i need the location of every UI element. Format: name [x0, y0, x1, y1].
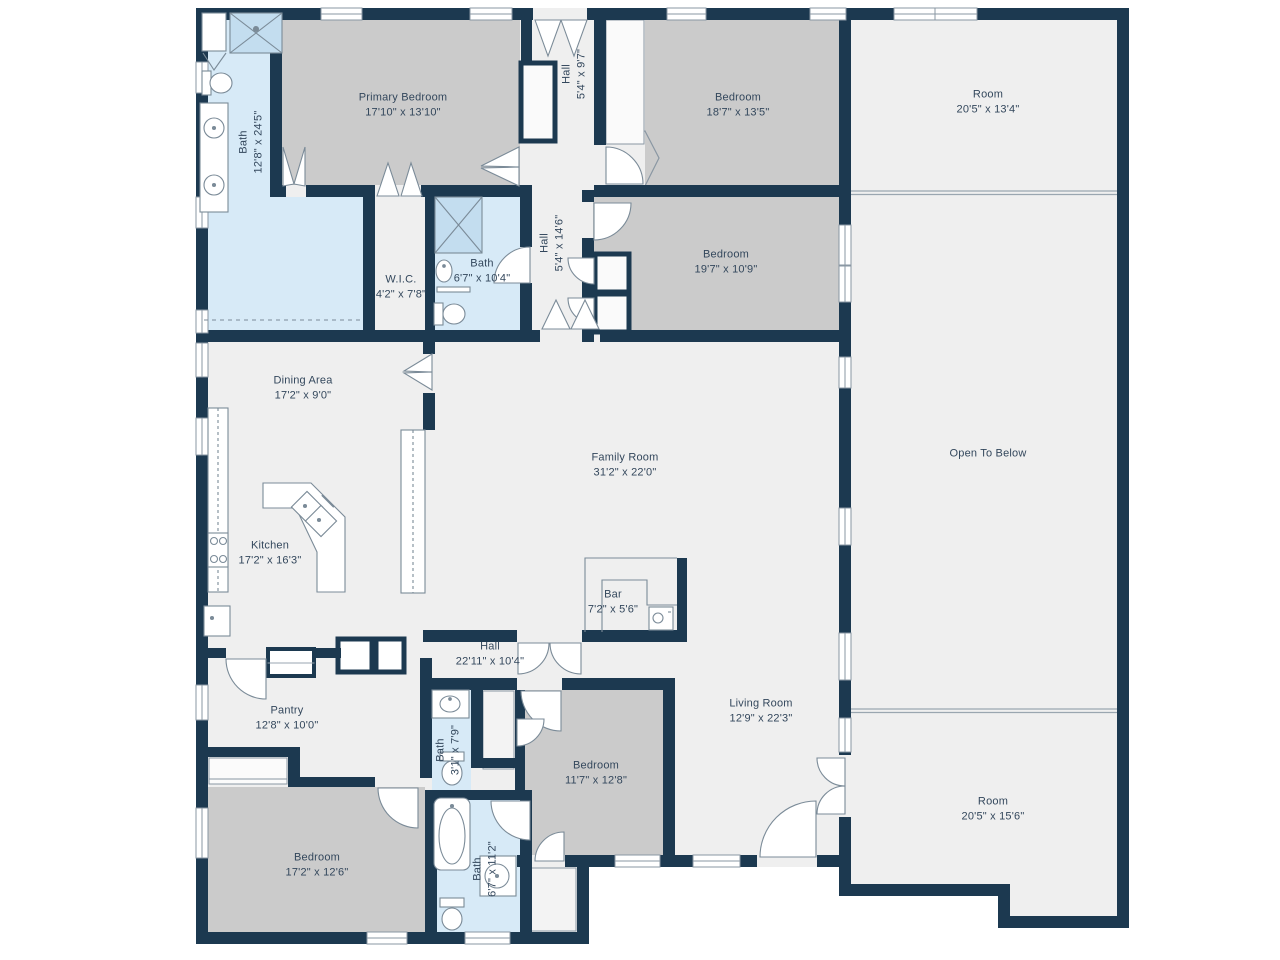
bathtub-icon — [434, 798, 470, 870]
room-label-open-below: Open To Below — [949, 446, 1026, 461]
room-label-living: Living Room12'9" x 22'3" — [729, 697, 792, 728]
room-label-bath-hall: Bath6'7" x 10'4" — [454, 257, 511, 288]
toilet-icon — [202, 71, 232, 95]
room-label-hall-upper: Hall5'4" x 9'7" — [560, 49, 591, 99]
room-label-family: Family Room31'2" x 22'0" — [592, 451, 659, 482]
room-label-bedroom-sw: Bedroom17'2" x 12'6" — [286, 851, 349, 882]
shower-icon — [230, 13, 282, 53]
double-vanity — [200, 103, 228, 212]
room-label-pantry: Pantry12'8" x 10'0" — [256, 704, 319, 735]
island-counter — [401, 430, 425, 593]
toilet-icon — [440, 898, 464, 930]
toilet-icon — [434, 303, 465, 325]
room-label-kitchen: Kitchen17'2" x 16'3" — [239, 539, 302, 570]
room-label-primary-bedroom: Primary Bedroom17'10" x 13'10" — [359, 91, 448, 122]
shower-icon — [435, 197, 482, 253]
room-label-hall-lower: Hall22'11" x 10'4" — [456, 640, 524, 671]
room-label-dining: Dining Area17'2" x 9'0" — [273, 374, 332, 405]
floor-plan-page: Bath12'8" x 24'5" Primary Bedroom17'10" … — [0, 0, 1280, 960]
room-label-room-lower: Room20'5" x 15'6" — [962, 795, 1025, 826]
room-label-bedroom-ne: Bedroom18'7" x 13'5" — [707, 91, 770, 122]
room-label-bath-primary: Bath12'8" x 24'5" — [237, 111, 268, 174]
room-label-room-upper: Room20'5" x 13'4" — [957, 88, 1020, 119]
room-label-hall-mid: Hall5'4" x 14'6" — [538, 215, 569, 272]
room-label-bedroom-e: Bedroom19'7" x 10'9" — [695, 248, 758, 279]
sink-icon — [432, 690, 469, 718]
linen-closet — [202, 13, 226, 51]
fridge-icon — [204, 606, 230, 636]
room-label-wic: W.I.C.4'2" x 7'8" — [376, 273, 426, 304]
room-label-bedroom-s: Bedroom11'7" x 12'8" — [565, 759, 627, 790]
room-label-bath-sw: Bath6'7" x 11'2" — [471, 841, 502, 897]
room-label-bar: Bar7'2" x 5'6" — [588, 588, 638, 619]
room-label-bath-small: Bath3'1" x 7'9" — [434, 725, 465, 775]
sink-icon — [436, 260, 452, 282]
